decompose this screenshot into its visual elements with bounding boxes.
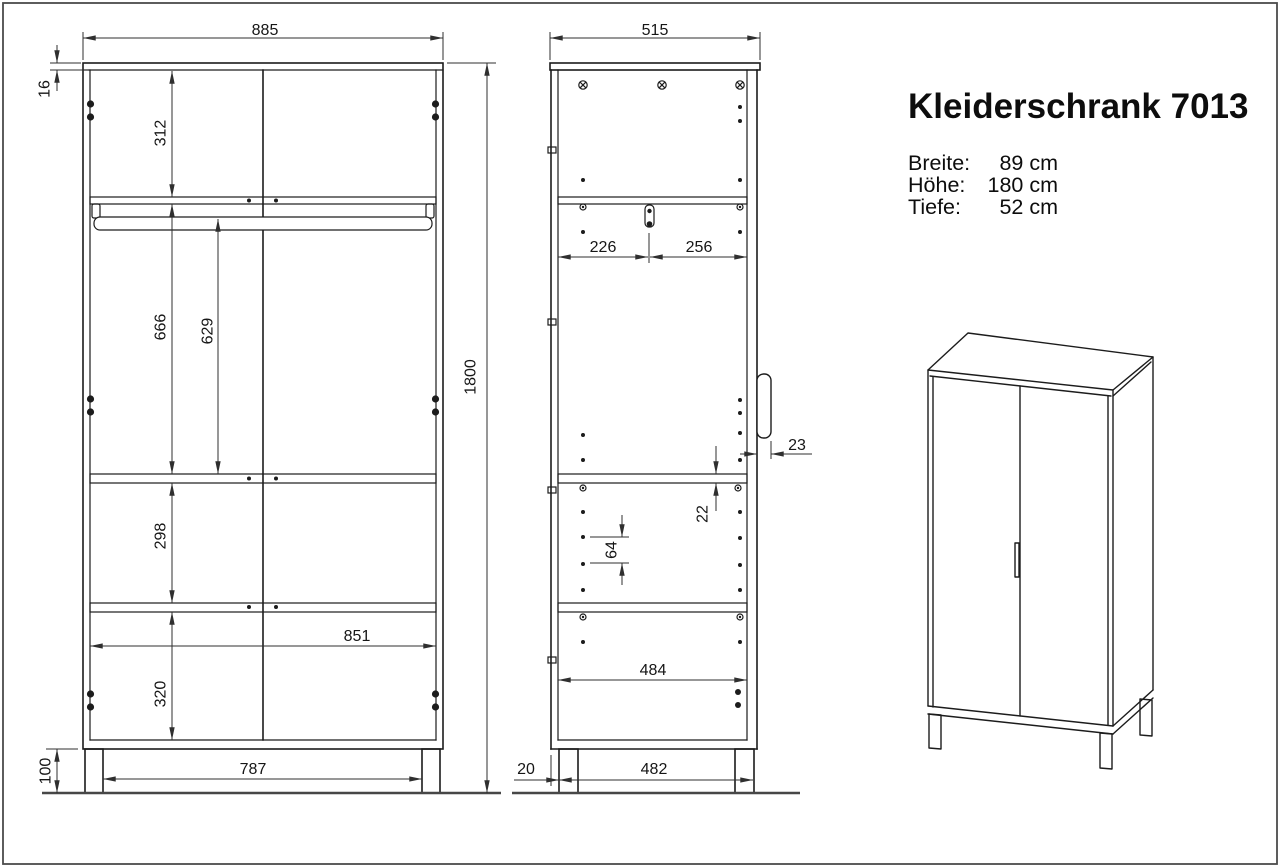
rail-bracket [645,205,654,227]
dim-rail-height: 629 [200,318,217,345]
iso-plinth-side [1113,698,1153,734]
drawing-title: Kleiderschrank 7013 [908,87,1248,126]
dim-top-panel: 16 [37,80,54,98]
spec-label-width: Breite: [908,151,970,175]
spec-value-depth: 52 cm [999,195,1058,219]
dim-top-section: 312 [153,120,170,147]
drill-holes-back-column [581,178,585,644]
sheet-border [3,3,1277,864]
top-screws [579,81,744,89]
side-hat-shelf [558,197,747,204]
dim-rail-to-front: 256 [686,239,713,256]
iso-top-face [928,333,1153,390]
front-left-leg [85,749,103,793]
title-block: Kleiderschrank 7013 Breite: 89 cm Höhe: … [908,87,1248,219]
iso-plinth-front [928,714,1113,734]
spec-label-depth: Tiefe: [908,195,961,219]
dim-rail-to-back: 226 [590,239,617,256]
side-top-panel [550,63,760,70]
dim-plinth-height: 100 [38,758,55,785]
side-view [512,63,800,793]
front-view-dimensions: 885 16 312 666 629 298 320 851 1800 100 [37,22,497,793]
side-front-leg [735,749,754,793]
dim-handle-depth: 23 [788,437,806,454]
back-wall-connectors [548,147,556,663]
side-back-leg [559,749,578,793]
spec-value-height: 180 cm [987,173,1058,197]
dim-back-inset: 20 [517,761,535,778]
side-lower-shelf [558,603,747,612]
front-right-leg [422,749,440,793]
iso-handle [1015,543,1019,577]
spec-value-width: 89 cm [999,151,1058,175]
iso-view [928,333,1153,769]
dim-shelf-section: 298 [153,523,170,550]
front-view [42,63,501,793]
side-middle-shelf [558,474,747,483]
dim-plinth-depth: 482 [641,761,668,778]
dim-total-height: 1800 [463,359,480,395]
iso-leg-front-left [929,714,941,749]
door-handle [757,374,771,438]
dim-depth: 515 [642,22,669,39]
dim-shelf-thickness: 22 [695,505,712,523]
dim-bottom-section: 320 [153,681,170,708]
iso-leg-front-right [1100,733,1112,769]
dim-middle-section: 666 [153,314,170,341]
dim-interior-width: 851 [344,628,371,645]
spec-label-height: Höhe: [908,173,965,197]
drawing-sheet: 885 16 312 666 629 298 320 851 1800 100 [0,0,1280,868]
dim-plinth-width: 787 [240,761,267,778]
dim-interior-depth: 484 [640,662,667,679]
dim-hole-pitch: 64 [604,541,621,559]
dim-front-width: 885 [252,22,279,39]
